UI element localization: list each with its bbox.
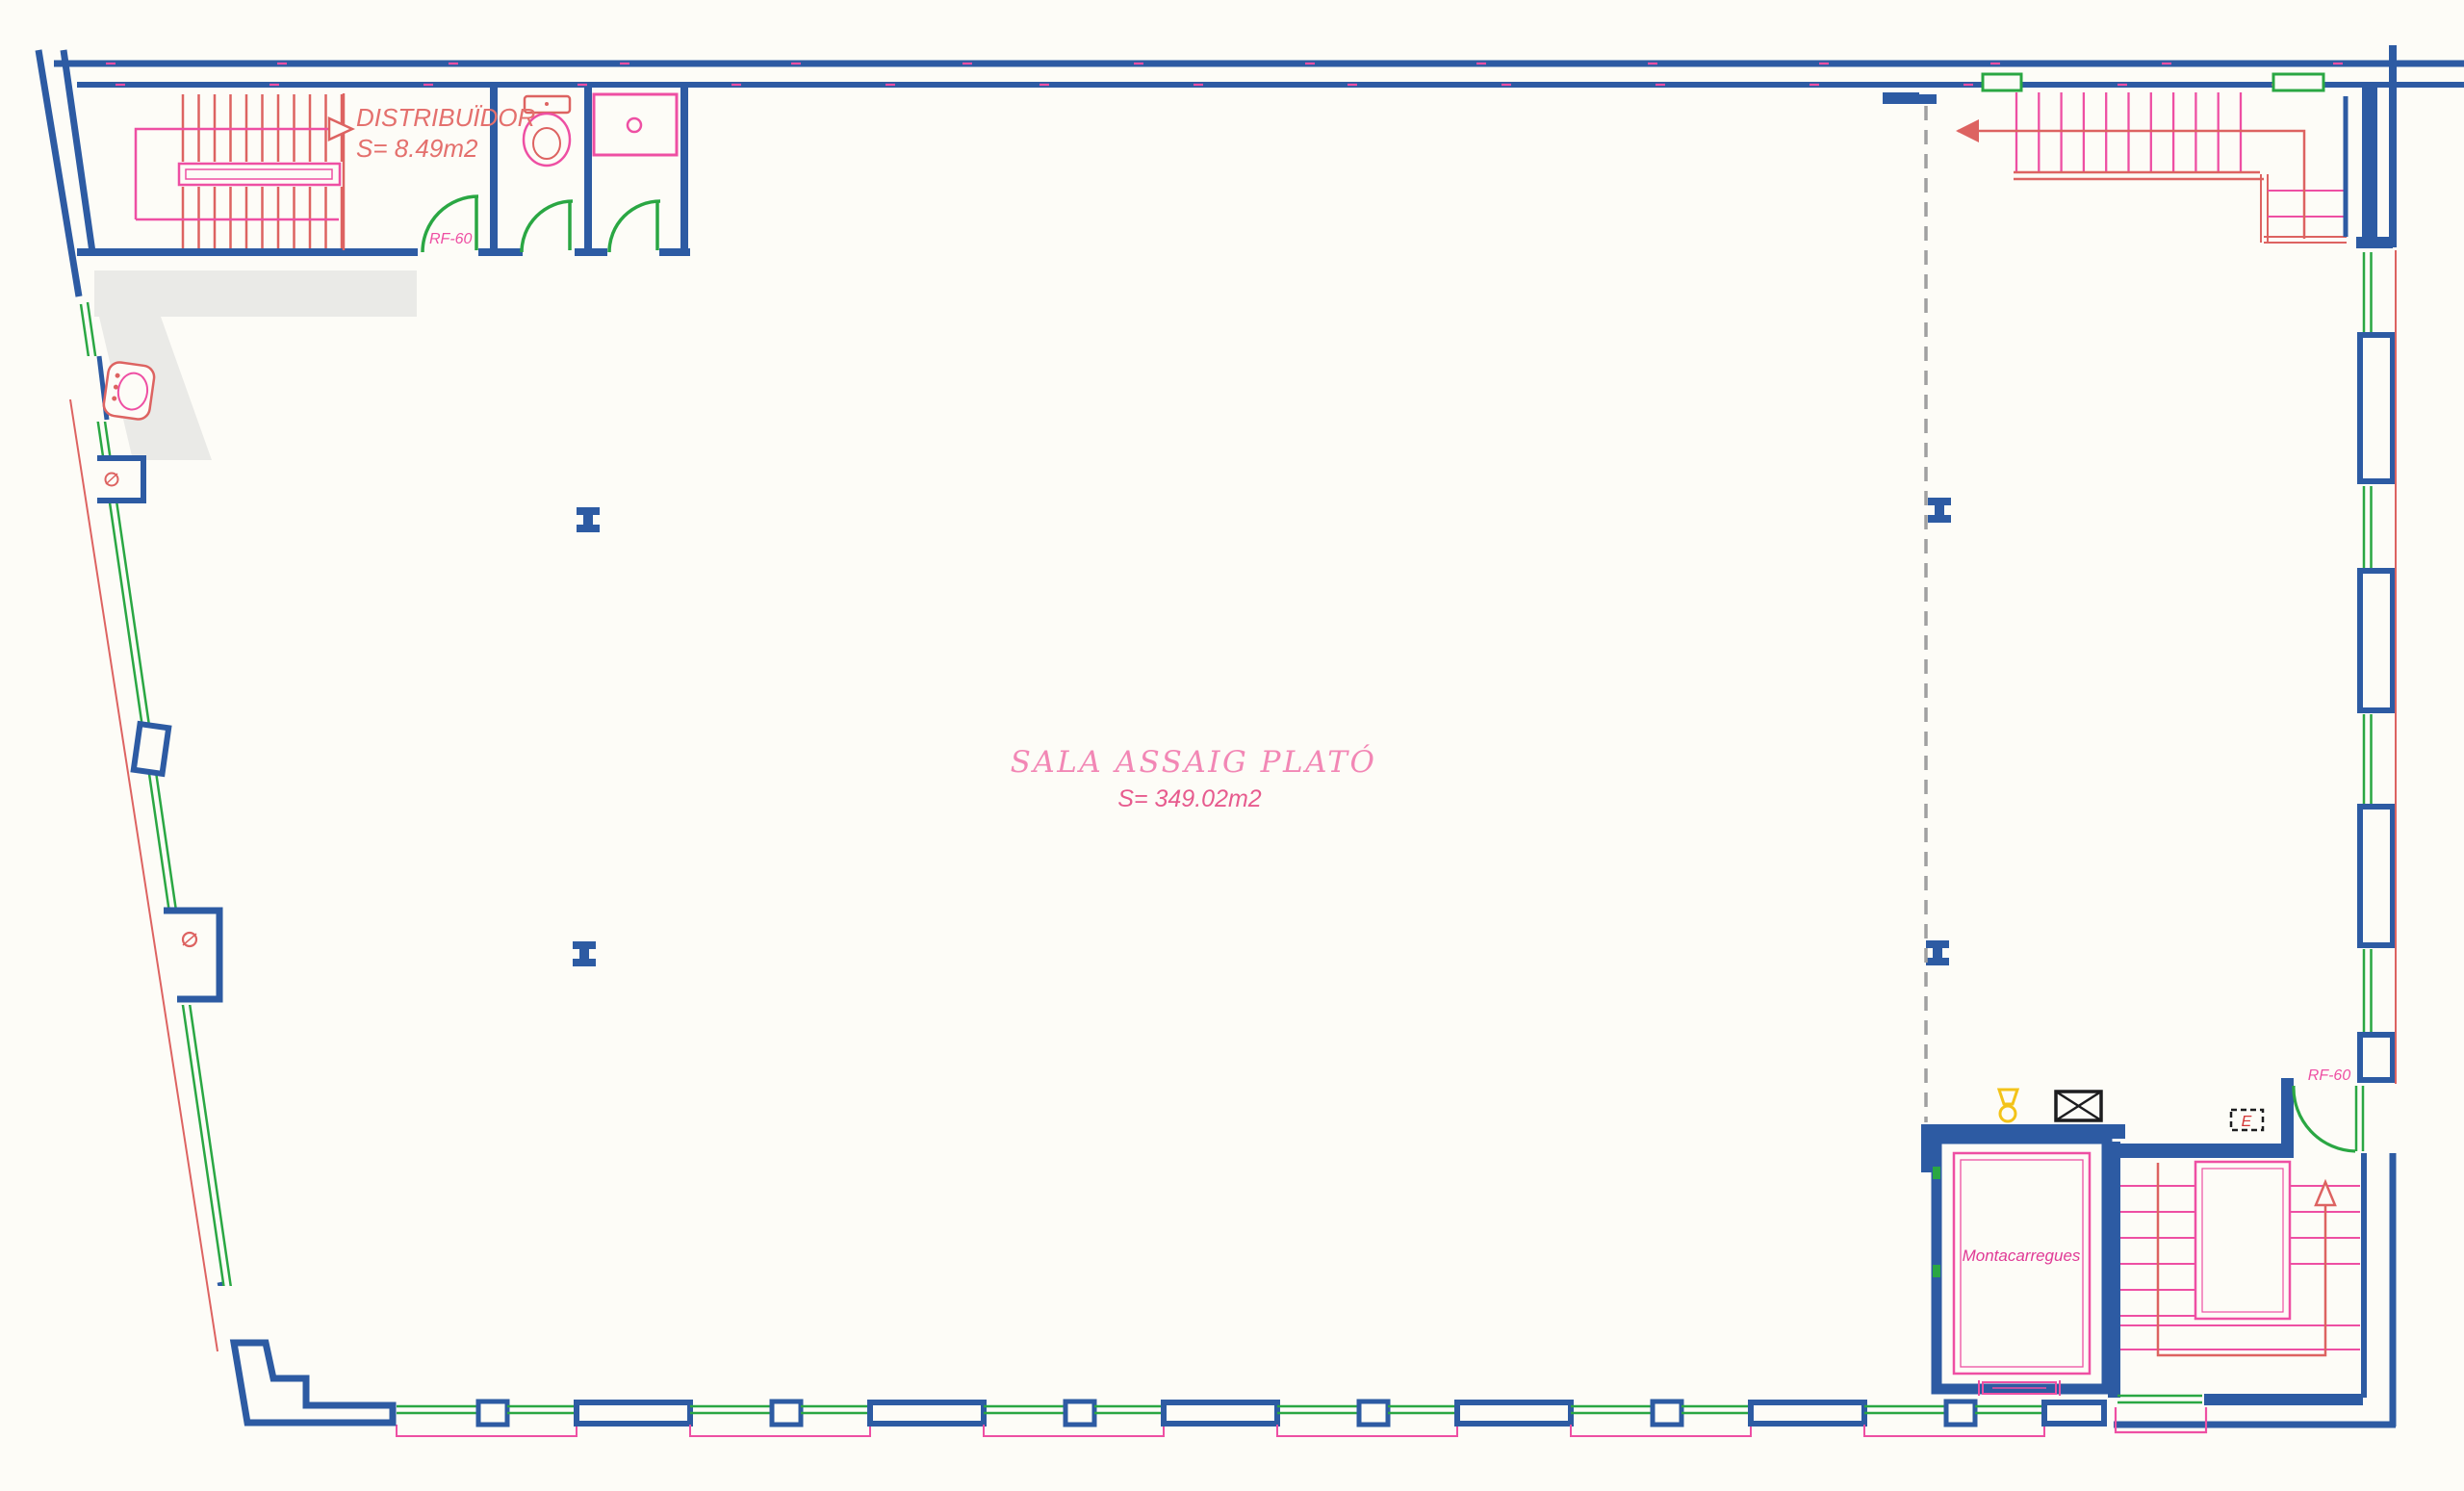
exterior-red-line — [70, 399, 218, 1351]
stair-walk-line — [1958, 131, 2304, 239]
left-sink — [102, 361, 155, 421]
left-wall-features — [70, 356, 219, 1351]
wall-segment — [1457, 1402, 1571, 1424]
shaft-door-contact — [1933, 1167, 1940, 1179]
wall-pier — [2360, 335, 2393, 481]
wall-pier — [1653, 1401, 1681, 1425]
stair-walk-line — [136, 129, 329, 219]
wall-pier — [1359, 1401, 1388, 1425]
stair-core — [2195, 1162, 2290, 1319]
washbasin-counter — [594, 94, 677, 155]
ne-corner-cap — [2356, 237, 2393, 248]
wall-segment — [1751, 1402, 1864, 1424]
wall-pier — [134, 724, 168, 774]
wall-pier — [772, 1401, 801, 1425]
rf60-door-se — [2294, 1086, 2363, 1151]
sw-corner-wall-block — [234, 1343, 393, 1423]
window-sill — [2116, 1407, 2206, 1432]
room-label-montacarregues: Montacarregues — [1963, 1247, 2081, 1265]
column-symbol — [573, 941, 596, 966]
wall-pier — [2360, 807, 2393, 945]
zone-wall — [2114, 1144, 2283, 1158]
yellow-hoist-symbol — [1999, 1090, 2017, 1104]
left-outer-slant-top — [38, 50, 79, 296]
stair-landing — [179, 164, 340, 185]
stair-direction-arrow — [1956, 119, 1979, 142]
elevator-zone — [1921, 1078, 2294, 1396]
wall-segment — [577, 1402, 690, 1424]
labels: DISTRIBUÏDOR S= 8.49m2 RF-60 SALA ASSAIG… — [356, 103, 2350, 1265]
wall-segment — [2044, 1402, 2104, 1424]
column-symbol — [1926, 940, 1949, 965]
room-area-sala-assaig: S= 349.02m2 — [1117, 785, 1262, 812]
stair-core-inner — [2202, 1169, 2283, 1312]
nw-staircase — [136, 118, 352, 219]
wall-pier — [1946, 1401, 1975, 1425]
fire-rating-label-nw: RF-60 — [429, 231, 473, 247]
door-arc — [2294, 1086, 2355, 1151]
wall-pier — [2360, 1035, 2393, 1080]
wall-pier — [2360, 571, 2393, 710]
window-gap — [212, 1286, 243, 1342]
floor-plan-page: DISTRIBUÏDOR S= 8.49m2 RF-60 SALA ASSAIG… — [0, 0, 2464, 1491]
column-symbol — [1928, 498, 1951, 523]
wall-segment — [1164, 1402, 1277, 1424]
floor-plan-drawing: DISTRIBUÏDOR S= 8.49m2 RF-60 SALA ASSAIG… — [0, 0, 2464, 1491]
fire-rating-label-se: RF-60 — [2308, 1067, 2351, 1084]
window-segment — [2273, 74, 2323, 90]
room-area-distribuidor: S= 8.49m2 — [356, 134, 478, 163]
window-segment — [1983, 74, 2021, 90]
yellow-hoist-symbol — [2000, 1106, 2015, 1121]
stair-side-wall — [2108, 1142, 2120, 1398]
washbasin-drain — [628, 118, 641, 132]
stair-landing-inner — [186, 169, 332, 179]
column-symbol — [577, 507, 600, 532]
door-arc — [609, 201, 660, 252]
door-jamb — [2281, 1078, 2294, 1158]
door-arc — [522, 201, 573, 252]
wall-pier — [478, 1401, 507, 1425]
wall-segment — [870, 1402, 984, 1424]
wc-fixtures — [524, 94, 677, 166]
room-label-sala-assaig: SALA ASSAIG PLATÓ — [1011, 743, 1377, 780]
shaft-door-contact — [1933, 1265, 1940, 1277]
elevator-letter: E — [2242, 1114, 2252, 1130]
toilet-button — [545, 102, 549, 106]
wall-niche — [97, 458, 143, 501]
wall-stub — [1913, 94, 1937, 104]
ne-corner-pier — [2362, 87, 2377, 244]
toilet-bowl-inner — [533, 128, 560, 159]
wall-pier — [1065, 1401, 1094, 1425]
walls — [38, 45, 2464, 1427]
room-label-distribuidor: DISTRIBUÏDOR — [356, 103, 535, 132]
